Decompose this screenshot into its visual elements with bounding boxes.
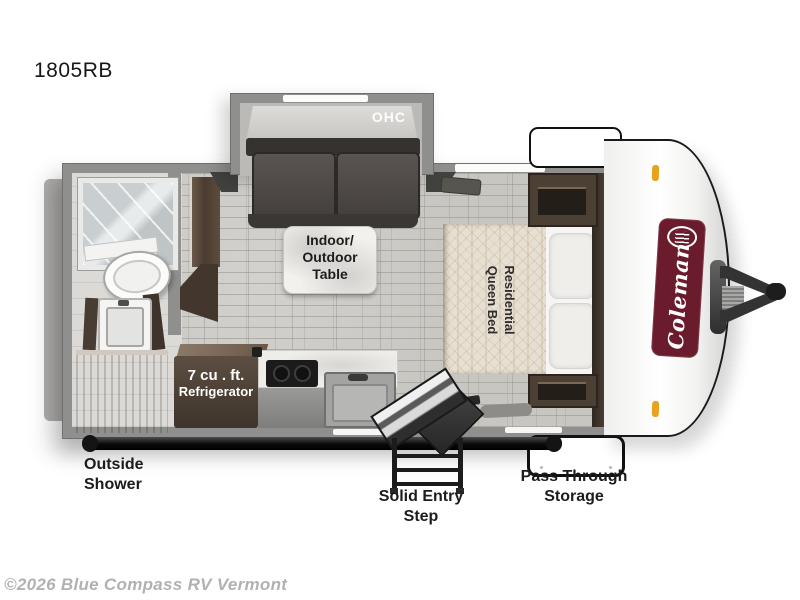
cabinet-shelf xyxy=(538,382,586,400)
frame-rail-cap-left xyxy=(82,435,98,452)
watermark: ©2026 Blue Compass RV Vermont xyxy=(4,575,287,595)
refrigerator-knob xyxy=(252,347,262,357)
refrigerator: 7 cu . ft. Refrigerator xyxy=(174,356,258,428)
outside-shower-label: Outside Shower xyxy=(84,455,144,494)
bed-label: Residential Queen Bed xyxy=(479,222,517,378)
model-title: 1805RB xyxy=(34,59,113,83)
marker-light-icon xyxy=(652,165,660,181)
table-label: Indoor/ Outdoor Table xyxy=(284,232,376,283)
sofa-cushion-left xyxy=(252,152,336,220)
ohc-label: OHC xyxy=(372,109,406,125)
marker-light-icon xyxy=(652,401,660,417)
cooktop xyxy=(266,360,318,387)
step-rung xyxy=(392,482,463,486)
floor-mat xyxy=(480,403,533,419)
vanity-side-panel-left xyxy=(83,298,99,351)
step-rung xyxy=(392,468,463,472)
coleman-badge: Coleman xyxy=(651,218,706,359)
bedside-cabinet-bottom xyxy=(528,374,598,408)
hitch-coupler xyxy=(766,283,786,300)
frame-rail xyxy=(84,437,562,450)
sofa-cushion-right xyxy=(336,152,420,220)
step-rung xyxy=(392,454,463,458)
bathroom-sink-basin xyxy=(106,307,144,347)
cabinet-shelf xyxy=(538,187,586,215)
coleman-logo-text: Coleman xyxy=(662,242,693,350)
bedside-cabinet-top xyxy=(528,173,598,227)
pillow xyxy=(549,233,595,299)
bottom-wall-window-right xyxy=(505,427,562,433)
floorplan-page: 1805RB OHC Indoor/ Outdoor Table xyxy=(0,0,800,600)
refrigerator-size-label: 7 cu . ft. xyxy=(174,367,258,384)
pass-through-label: Pass Through Storage xyxy=(516,467,632,506)
refrigerator-label: Refrigerator xyxy=(174,384,258,399)
vanity-counter xyxy=(76,350,168,433)
pillow xyxy=(549,303,595,369)
bathroom-faucet xyxy=(118,300,129,306)
wardrobe-cabinet xyxy=(190,177,220,267)
burner-icon xyxy=(294,365,311,382)
dinette-table: Indoor/ Outdoor Table xyxy=(283,226,377,294)
overhead-cabinet-labelbox: OHC xyxy=(246,106,418,142)
frame-rail-cap-right xyxy=(546,435,562,452)
entry-step-label: Solid Entry Step xyxy=(362,487,480,526)
slideout-window xyxy=(283,95,368,102)
kitchen-faucet xyxy=(348,374,368,381)
toilet-seat xyxy=(111,257,163,296)
burner-icon xyxy=(273,365,290,382)
floor-vent xyxy=(440,176,481,195)
